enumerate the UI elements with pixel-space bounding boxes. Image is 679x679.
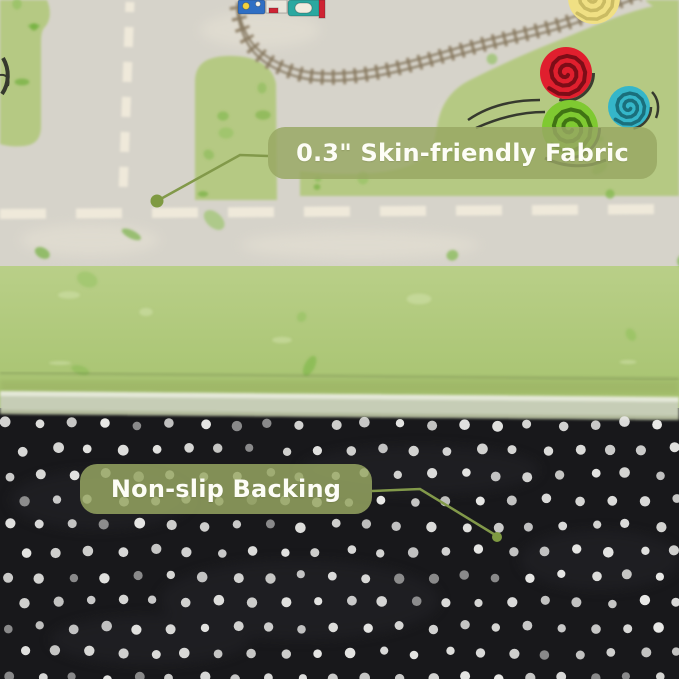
- anchor-dot-fabric: [151, 195, 164, 208]
- anchor-dot-backing: [492, 532, 502, 542]
- callout-backing-label: Non-slip Backing: [111, 475, 341, 503]
- callout-non-slip-backing: Non-slip Backing: [80, 464, 372, 514]
- callout-skin-friendly-fabric: 0.3" Skin-friendly Fabric: [268, 127, 657, 179]
- product-photo-rug: 0.3" Skin-friendly Fabric Non-slip Backi…: [0, 0, 679, 679]
- horizontal-road-dashes: [0, 209, 679, 214]
- grass-middle-wedge: [195, 56, 277, 200]
- rug-photo-graphic: [0, 0, 679, 679]
- callout-fabric-label: 0.3" Skin-friendly Fabric: [296, 139, 629, 167]
- fold-shadow: [0, 380, 679, 394]
